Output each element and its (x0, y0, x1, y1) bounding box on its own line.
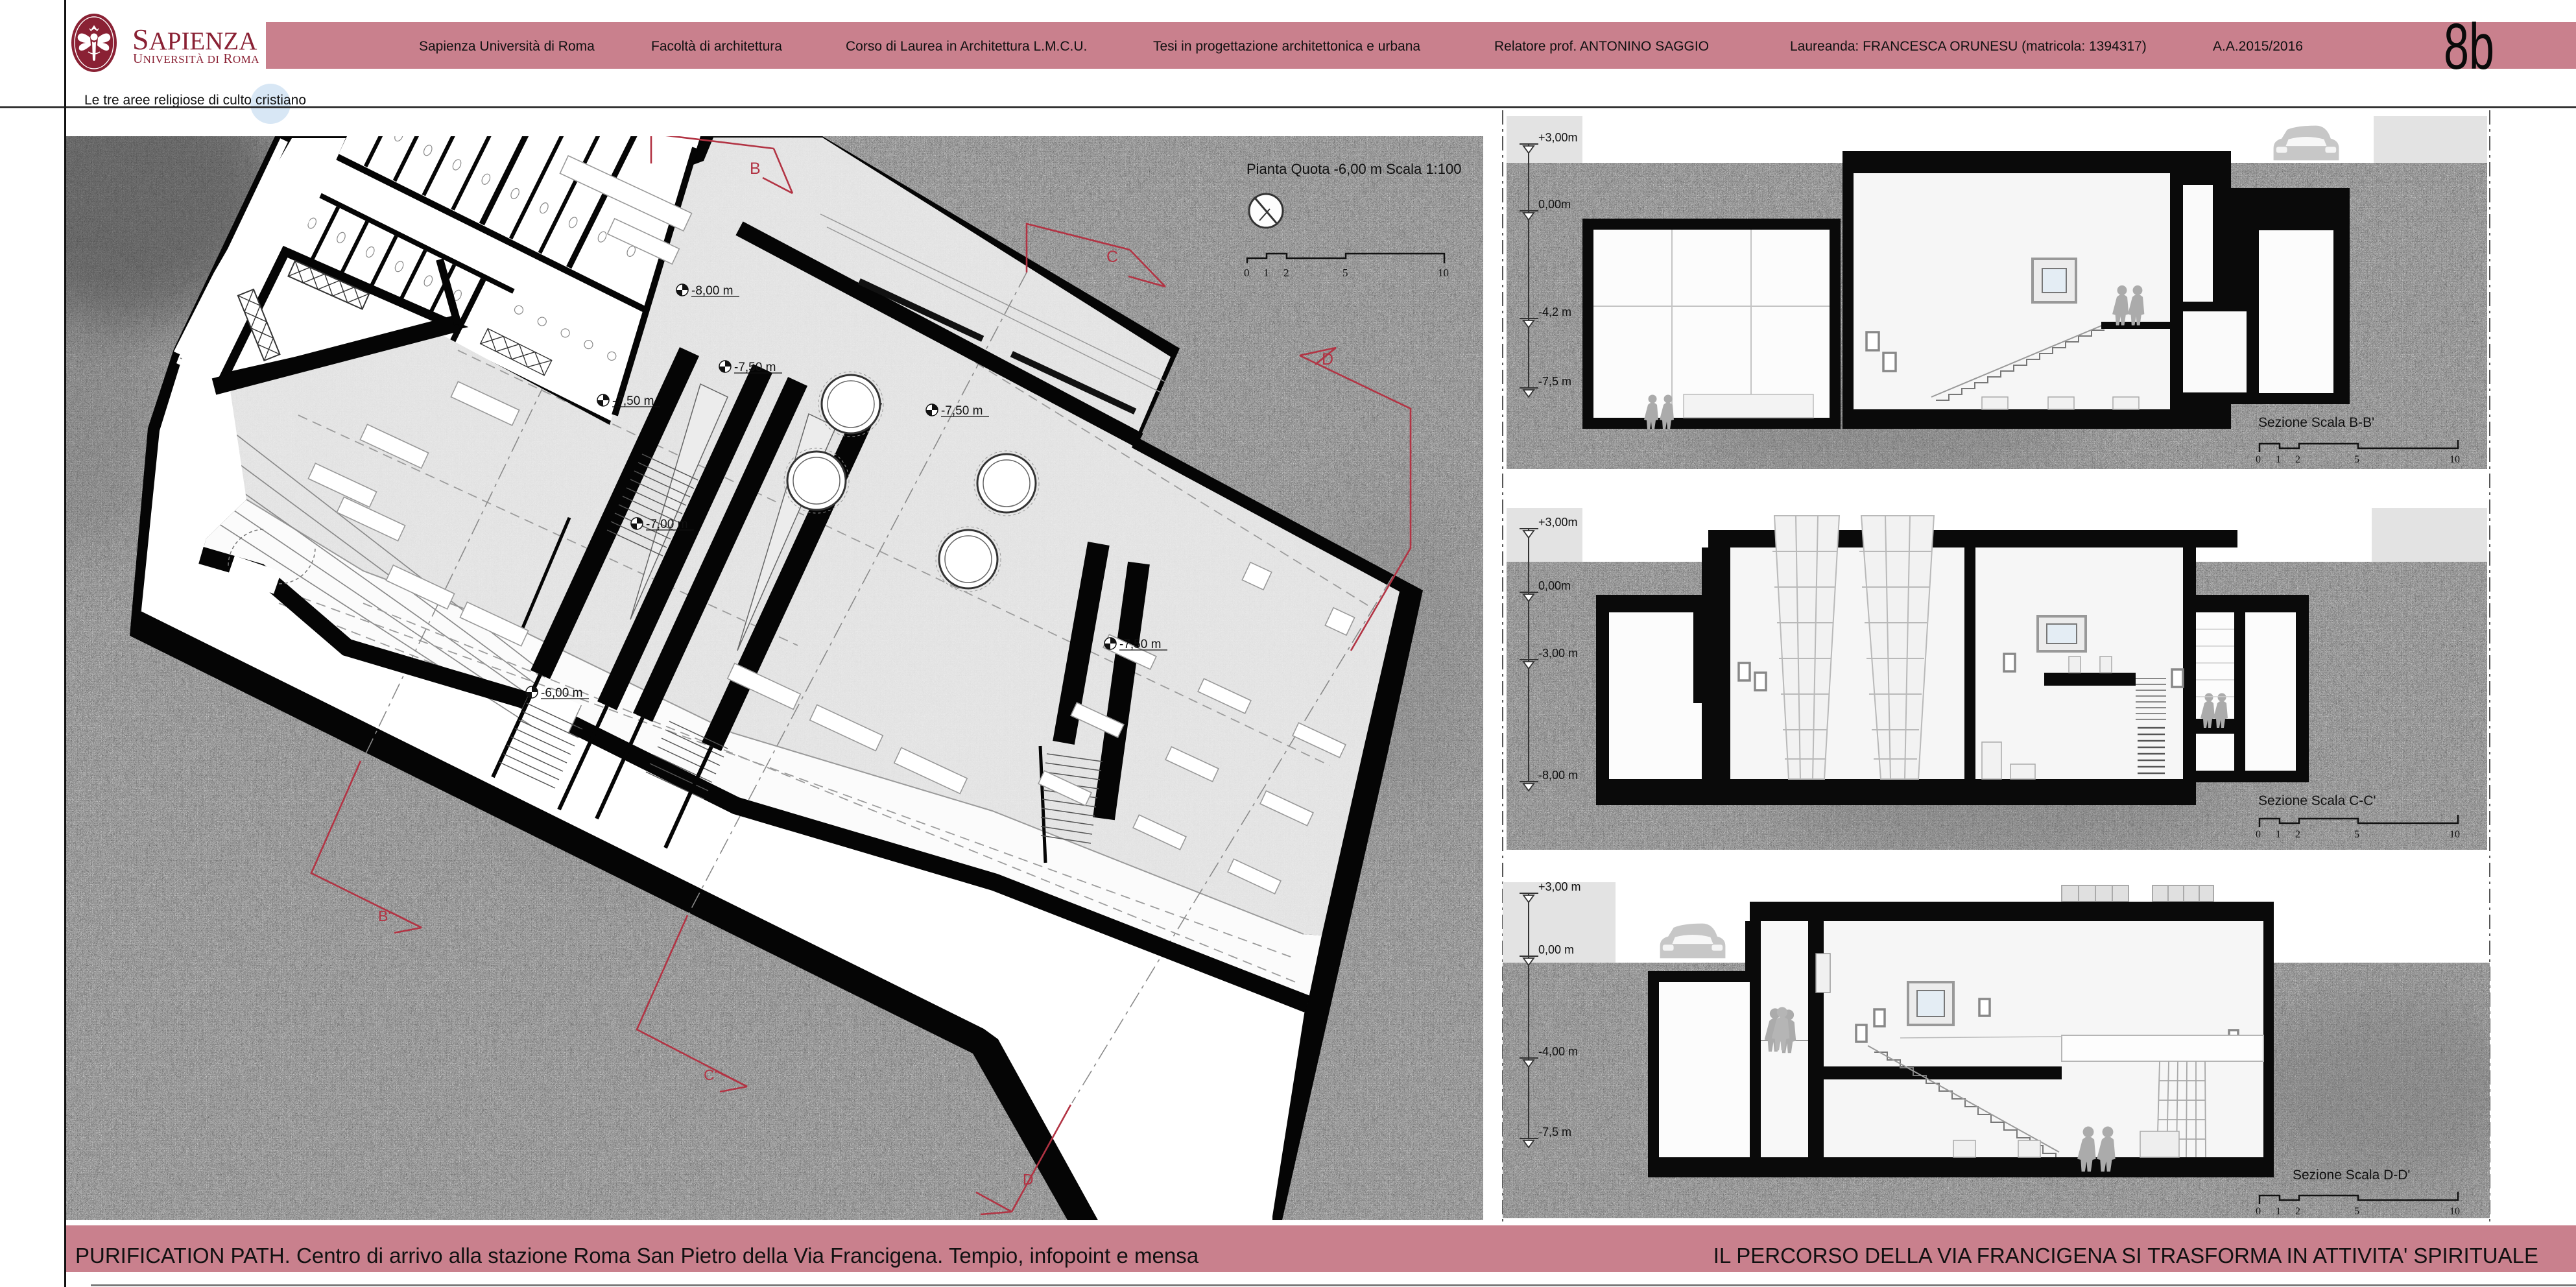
svg-text:Facoltà di architettura: Facoltà di architettura (651, 39, 782, 54)
svg-text:PURIFICATION PATH. Centro di a: PURIFICATION PATH. Centro di arrivo alla… (75, 1244, 1199, 1268)
svg-text:10: 10 (1438, 267, 1449, 279)
svg-text:2: 2 (2295, 829, 2300, 840)
svg-text:-3,00 m: -3,00 m (1538, 647, 1578, 660)
svg-text:1: 1 (1263, 267, 1269, 279)
svg-text:0,00m: 0,00m (1538, 198, 1571, 211)
svg-text:UNIVERSITÀ DI ROMA: UNIVERSITÀ DI ROMA (133, 51, 259, 66)
svg-text:Le tre aree religiose di culto: Le tre aree religiose di culto cristiano (84, 93, 306, 108)
svg-text:10: 10 (2450, 829, 2460, 840)
svg-text:Corso di Laurea in Architettur: Corso di Laurea in Architettura L.M.C.U. (846, 39, 1087, 54)
svg-text:-4,2 m: -4,2 m (1538, 306, 1571, 319)
svg-text:10: 10 (2450, 454, 2460, 465)
svg-text:+3,00m: +3,00m (1538, 516, 1578, 529)
svg-text:-7,00 m: -7,00 m (646, 518, 687, 531)
svg-text:5: 5 (2354, 829, 2359, 840)
svg-text:5: 5 (1342, 267, 1348, 279)
svg-text:SAPIENZA: SAPIENZA (132, 23, 257, 56)
svg-text:A.A.2015/2016: A.A.2015/2016 (2213, 39, 2303, 54)
svg-text:10: 10 (2450, 1206, 2460, 1217)
svg-text:Sapienza Università di Roma: Sapienza Università di Roma (419, 39, 595, 54)
svg-text:-8,00 m: -8,00 m (691, 284, 733, 298)
svg-text:-7,5 m: -7,5 m (1538, 1125, 1571, 1138)
svg-text:+3,00m: +3,00m (1538, 131, 1578, 144)
svg-text:0: 0 (1244, 267, 1250, 279)
svg-text:2: 2 (2295, 454, 2300, 465)
svg-text:C: C (1106, 248, 1118, 266)
svg-text:0: 0 (2256, 1206, 2261, 1217)
svg-text:-7,50 m: -7,50 m (734, 361, 776, 374)
svg-text:-8,00 m: -8,00 m (1538, 769, 1578, 782)
svg-text:Laureanda: FRANCESCA ORUNESU (: Laureanda: FRANCESCA ORUNESU (matricola:… (1790, 39, 2147, 54)
svg-text:Pianta Quota -6,00 m Scala 1:1: Pianta Quota -6,00 m Scala 1:100 (1246, 161, 1461, 177)
svg-text:B: B (750, 160, 761, 178)
svg-text:-7,50 m: -7,50 m (612, 394, 654, 408)
svg-text:Relatore prof. ANTONINO SAGGIO: Relatore prof. ANTONINO SAGGIO (1494, 39, 1709, 54)
svg-text:D: D (1322, 350, 1333, 368)
svg-text:IL PERCORSO DELLA VIA FRANCIGE: IL PERCORSO DELLA VIA FRANCIGENA SI TRAS… (1713, 1244, 2538, 1268)
svg-text:0: 0 (2256, 454, 2261, 465)
svg-text:C': C' (704, 1066, 717, 1083)
svg-text:0,00 m: 0,00 m (1538, 943, 1574, 956)
svg-text:-7,50 m: -7,50 m (1119, 638, 1161, 651)
svg-text:B': B' (378, 908, 391, 924)
svg-text:Sezione Scala B-B': Sezione Scala B-B' (2258, 415, 2374, 430)
svg-text:Sezione Scala D-D': Sezione Scala D-D' (2293, 1168, 2410, 1183)
svg-text:-4,00 m: -4,00 m (1538, 1045, 1578, 1058)
svg-text:0,00m: 0,00m (1538, 579, 1571, 592)
svg-text:1: 1 (2276, 829, 2281, 840)
svg-text:Sezione Scala C-C': Sezione Scala C-C' (2258, 793, 2376, 808)
svg-text:5: 5 (2354, 454, 2359, 465)
svg-text:-7,5 m: -7,5 m (1538, 375, 1571, 388)
svg-text:1: 1 (2276, 1206, 2281, 1217)
svg-text:D: D (1023, 1171, 1034, 1188)
svg-text:Tesi in progettazione architet: Tesi in progettazione architettonica e u… (1153, 39, 1420, 54)
svg-text:-7,50 m: -7,50 m (941, 404, 983, 418)
svg-text:2: 2 (2295, 1206, 2300, 1217)
svg-text:+3,00 m: +3,00 m (1538, 880, 1581, 893)
svg-text:0: 0 (2256, 829, 2261, 840)
svg-text:2: 2 (1283, 267, 1289, 279)
svg-text:8b: 8b (2444, 10, 2494, 83)
svg-text:-6,00 m: -6,00 m (541, 686, 582, 700)
svg-text:1: 1 (2276, 454, 2281, 465)
svg-text:5: 5 (2354, 1206, 2359, 1217)
